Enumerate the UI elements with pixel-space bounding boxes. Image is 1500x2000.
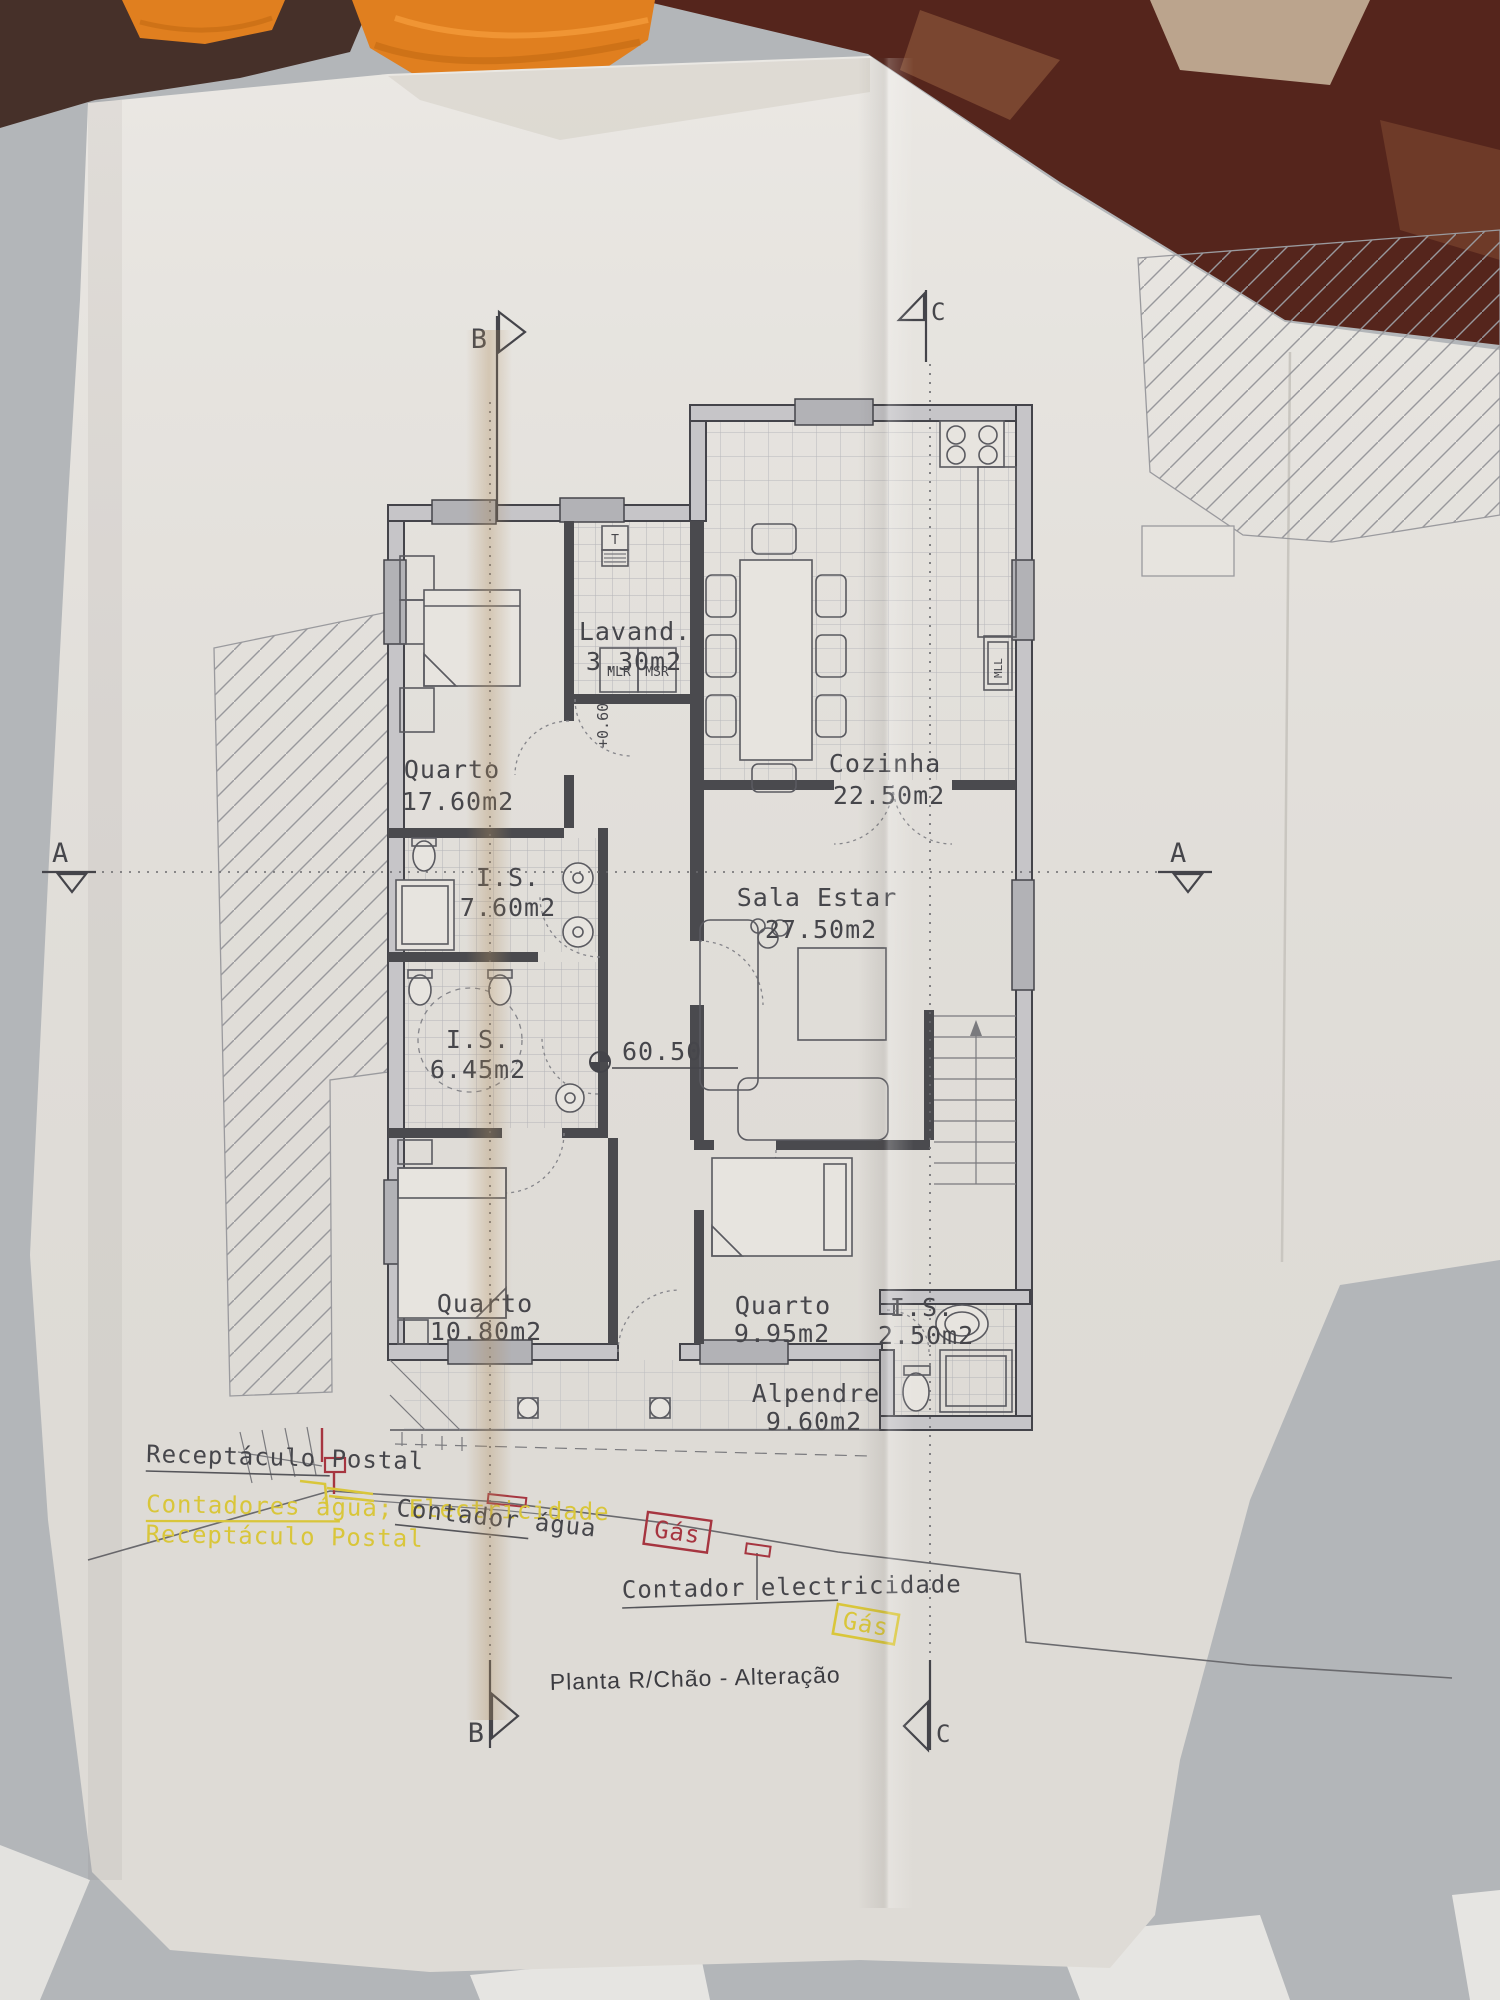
- porch-column: [650, 1398, 670, 1418]
- water-heater-label: T: [611, 533, 619, 548]
- mlr-label: MLR: [607, 665, 631, 680]
- bed-quarto3: [712, 1158, 852, 1256]
- porch-column: [518, 1398, 538, 1418]
- window-quarto1-left: [384, 560, 406, 644]
- marker-letter: C: [936, 1720, 950, 1748]
- annotation-text-2: Receptáculo Postal: [145, 1520, 424, 1553]
- mll-label: MLL: [992, 658, 1005, 678]
- furniture-quarto3: [712, 1158, 852, 1256]
- floor-plan-photo-svg: B C A A B C: [0, 0, 1500, 2000]
- marker-letter: A: [52, 838, 68, 869]
- photo-of-floor-plan: B C A A B C: [0, 0, 1500, 2000]
- marker-letter: A: [1170, 838, 1186, 869]
- washbasin: [556, 1084, 584, 1112]
- toilet: [409, 975, 431, 1005]
- floor-level-value: 60.50: [622, 1037, 702, 1066]
- room-label-quarto3-name: Quarto: [735, 1291, 831, 1320]
- dining-table: [740, 560, 812, 760]
- step-level-label: +0.60: [594, 703, 612, 748]
- bathtub: [396, 880, 454, 950]
- marker-letter: C: [931, 298, 945, 326]
- room-label-quarto3-area: 9.95m2: [734, 1319, 830, 1348]
- window-laundry: [560, 498, 624, 522]
- room-label-alpendre-area: 9.60m2: [766, 1407, 862, 1436]
- msr-label: MSR: [645, 665, 669, 680]
- room-label-lavand-name: Lavand.: [579, 617, 691, 646]
- center-fold-shadow: [466, 330, 512, 1720]
- right-fold-shadow: [858, 58, 914, 1908]
- washbasin: [563, 863, 593, 893]
- left-edge-shadow: [88, 100, 122, 1880]
- marker-letter: B: [468, 1718, 484, 1749]
- window-sala-right: [1012, 880, 1034, 990]
- neighbour-annex: [1142, 526, 1234, 576]
